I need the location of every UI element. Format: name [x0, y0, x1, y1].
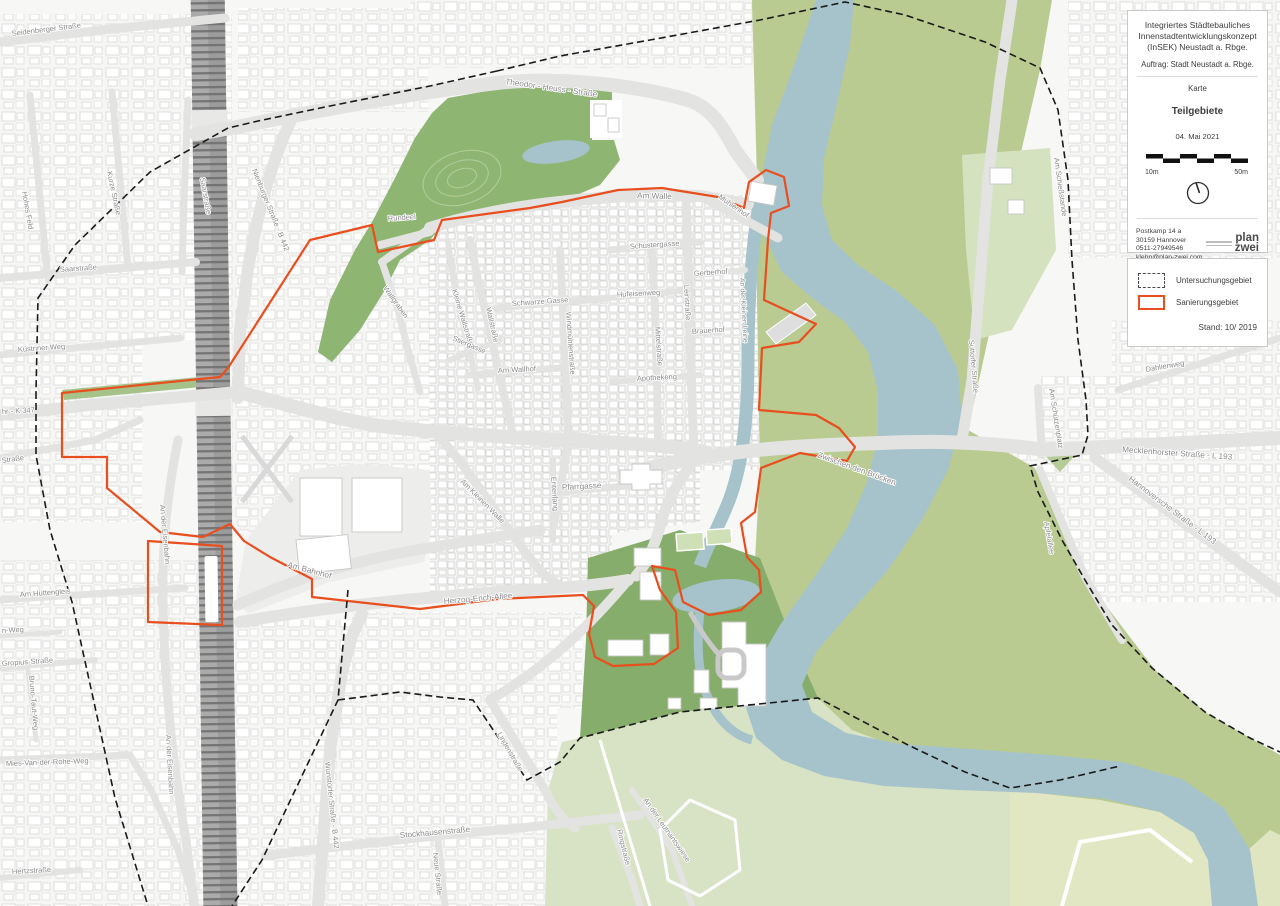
- untersuchungsgebiet-label: Untersuchungsgebiet: [1176, 276, 1252, 285]
- station-platform: [204, 556, 218, 622]
- legend-item-sanierungsgebiet: Sanierungsgebiet: [1138, 295, 1257, 310]
- scale-max-label: 50m: [1234, 169, 1248, 176]
- title-panel: Integriertes Städtebauliches Innenstadte…: [1127, 10, 1268, 253]
- street-label: Am Walle: [637, 191, 672, 201]
- street-label: hr - K 347: [2, 405, 35, 416]
- project-title-line3: (InSEK) Neustadt a. Rbge.: [1133, 42, 1262, 53]
- map-title: Teilgebiete: [1133, 106, 1262, 117]
- commission-text: Auftrag: Stadt Neustadt a. Rbge.: [1133, 60, 1262, 69]
- street-label: n-Weg: [2, 625, 24, 635]
- sanierungsgebiet-swatch: [1138, 295, 1165, 310]
- legend-panel: Untersuchungsgebiet Sanierungsgebiet Sta…: [1127, 258, 1268, 347]
- harbor: [748, 181, 777, 205]
- project-title-line1: Integriertes Städtebauliches: [1133, 20, 1262, 31]
- scale-bar: 10m 50m: [1133, 150, 1262, 176]
- insek-map-page: { "info_panel": { "title_line1": "Integr…: [0, 0, 1280, 906]
- map-date: 04. Mai 2021: [1133, 132, 1262, 141]
- untersuchungsgebiet-swatch: [1138, 273, 1165, 288]
- north-arrow: [1133, 180, 1262, 211]
- map-canvas: Seidenberger Straße Hohes Feld Kurze Str…: [0, 0, 1280, 906]
- scale-min-label: 10m: [1145, 169, 1159, 176]
- street-label: Leinstraße: [682, 285, 693, 321]
- office-address-line1: Postkamp 14 a: [1136, 228, 1203, 237]
- legend-item-untersuchungsgebiet: Untersuchungsgebiet: [1138, 273, 1257, 288]
- plan-zwei-logo: plan zwei: [1235, 234, 1259, 253]
- sanierungsgebiet-label: Sanierungsgebiet: [1176, 298, 1238, 307]
- compass-icon: [1185, 180, 1211, 206]
- project-title-line2: Innenstadtentwicklungskonzept: [1133, 31, 1262, 42]
- status-date: Stand: 10/ 2019: [1138, 322, 1257, 332]
- scale-bar-graphic: [1146, 153, 1250, 163]
- divider: [1137, 218, 1258, 219]
- logo-tagline-placeholder: [1206, 241, 1232, 246]
- map-type-label: Karte: [1133, 84, 1262, 93]
- divider: [1137, 76, 1258, 77]
- office-phone: 0511-27949546: [1136, 245, 1203, 254]
- office-address-line2: 30159 Hannover: [1136, 237, 1203, 246]
